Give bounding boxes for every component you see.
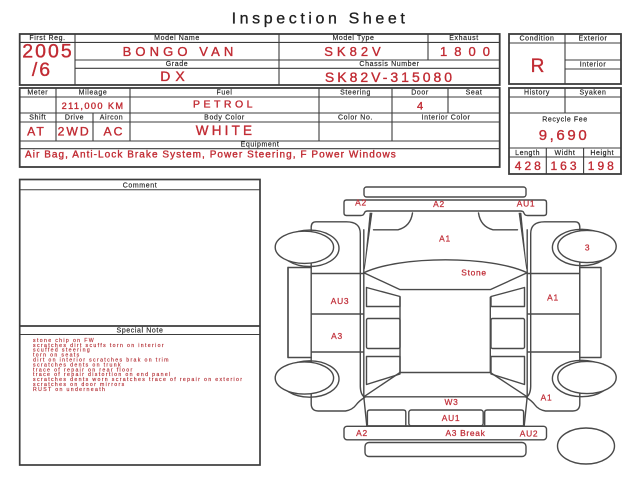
svg-text:Shift: Shift [29, 115, 46, 122]
svg-text:Comment: Comment [123, 182, 158, 189]
svg-text:Special Note: Special Note [117, 328, 164, 335]
svg-text:PETROL: PETROL [193, 99, 256, 111]
svg-text:1800: 1800 [440, 44, 497, 59]
svg-text:AU1: AU1 [442, 413, 460, 423]
svg-text:R: R [531, 56, 545, 77]
svg-text:A1: A1 [439, 233, 451, 243]
svg-text:AT: AT [27, 125, 46, 139]
svg-text:Exhaust: Exhaust [449, 35, 479, 42]
svg-text:W3: W3 [445, 397, 459, 407]
svg-text:Widht: Widht [555, 150, 576, 157]
svg-text:Inspection Sheet: Inspection Sheet [232, 10, 409, 27]
svg-text:History: History [524, 90, 550, 97]
svg-text:A1: A1 [547, 292, 559, 302]
svg-text:4: 4 [417, 101, 423, 113]
svg-text:AU1: AU1 [517, 198, 535, 208]
svg-text:2WD: 2WD [58, 125, 91, 139]
svg-text:Body Color: Body Color [204, 115, 245, 122]
svg-text:Syaken: Syaken [580, 90, 607, 97]
svg-text:A2: A2 [433, 199, 445, 209]
svg-text:/6: /6 [32, 59, 52, 81]
svg-text:A3 Break: A3 Break [445, 428, 485, 438]
svg-text:Drive: Drive [65, 115, 84, 122]
svg-text:Height: Height [590, 150, 614, 157]
svg-text:Aircon: Aircon [100, 115, 123, 122]
svg-text:AU3: AU3 [331, 296, 349, 306]
svg-text:A2: A2 [355, 197, 367, 207]
svg-text:Air Bag, Anti-Lock Brake Syste: Air Bag, Anti-Lock Brake System, Power S… [25, 149, 397, 160]
svg-text:Condition: Condition [520, 36, 555, 43]
svg-text:211,000 KM: 211,000 KM [62, 101, 125, 111]
svg-text:SK82V: SK82V [324, 44, 384, 59]
svg-text:Interior Color: Interior Color [422, 115, 471, 122]
svg-text:BONGO VAN: BONGO VAN [123, 44, 238, 59]
svg-text:9,690: 9,690 [539, 127, 590, 144]
svg-text:Steering: Steering [340, 90, 371, 97]
svg-text:Exterior: Exterior [579, 36, 608, 43]
svg-text:428: 428 [515, 159, 544, 173]
svg-text:SK82V-315080: SK82V-315080 [325, 69, 455, 85]
svg-text:Model Name: Model Name [154, 35, 200, 42]
svg-text:Meter: Meter [27, 90, 48, 97]
svg-text:3: 3 [585, 243, 590, 253]
svg-text:Mileage: Mileage [79, 90, 108, 97]
svg-text:RUST on underneath: RUST on underneath [33, 387, 106, 393]
svg-text:Fuel: Fuel [216, 90, 232, 97]
svg-text:Stone: Stone [461, 268, 486, 278]
svg-text:DX: DX [160, 68, 189, 84]
svg-text:A3: A3 [331, 331, 343, 341]
svg-text:Seat: Seat [466, 90, 483, 97]
svg-text:Door: Door [411, 90, 429, 97]
svg-text:WHITE: WHITE [196, 123, 256, 138]
svg-text:AU2: AU2 [520, 428, 538, 438]
svg-text:A1: A1 [541, 393, 553, 403]
svg-text:Color No.: Color No. [338, 115, 373, 122]
svg-text:Recycle Fee: Recycle Fee [542, 117, 588, 124]
svg-text:AC: AC [104, 125, 125, 139]
svg-text:163: 163 [550, 159, 579, 173]
svg-text:Chassis Number: Chassis Number [359, 61, 419, 68]
svg-text:198: 198 [588, 159, 617, 173]
svg-text:Model Type: Model Type [332, 35, 374, 42]
svg-text:Length: Length [515, 150, 540, 157]
svg-text:Interior: Interior [580, 62, 607, 69]
svg-text:Equipment: Equipment [241, 142, 280, 149]
svg-text:A2: A2 [356, 428, 368, 438]
